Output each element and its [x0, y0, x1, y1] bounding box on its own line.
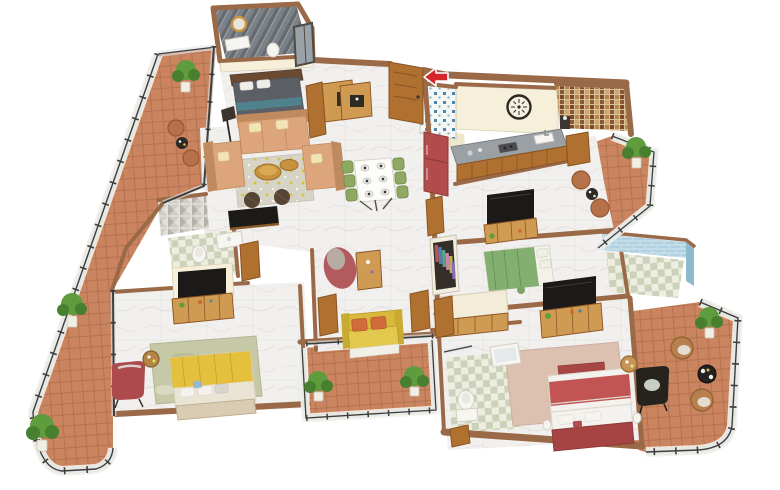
dining-table: [354, 158, 396, 202]
tea-cup: [183, 143, 186, 146]
sofa-pillow: [276, 119, 289, 129]
door-master: [434, 296, 454, 338]
door-mosaic-bathroom: [566, 132, 590, 166]
kitchen-clock-wall: [456, 84, 558, 134]
dish: [593, 195, 596, 198]
accent-pillow: [573, 420, 583, 427]
dish: [589, 191, 592, 194]
sofa-pillow: [311, 153, 323, 163]
dining-chair: [346, 189, 358, 202]
bathroom-brown-mosaic-wall: [556, 84, 628, 131]
plate: [709, 375, 713, 379]
snack: [707, 369, 710, 372]
decor: [370, 270, 373, 273]
gold-round-mirror: [232, 17, 246, 31]
round-cushion: [517, 286, 525, 294]
basin-bowl: [563, 116, 567, 120]
figurine: [366, 260, 370, 264]
blue-bath-right-wall: [686, 242, 694, 286]
sofa-pillow: [218, 151, 230, 161]
foyer-open-door: [306, 82, 326, 138]
pillow: [585, 411, 602, 422]
armchair-cushion: [644, 379, 660, 391]
armchair-left: [212, 141, 245, 190]
chair-cushion: [678, 345, 691, 355]
refrigerator: [424, 132, 448, 196]
decor: [147, 355, 150, 358]
rattan-chair: [691, 389, 713, 411]
burner: [504, 147, 507, 150]
pillow: [215, 383, 229, 393]
yellow-room-side-table: [143, 351, 159, 367]
cup: [630, 364, 633, 367]
toilet-top: [267, 43, 279, 57]
dresser-decor: [570, 310, 574, 314]
chair-cushion: [698, 397, 711, 407]
dining-chair: [344, 175, 356, 188]
dining-chair: [397, 186, 409, 199]
pillow: [537, 248, 549, 257]
plate: [701, 369, 705, 373]
cabinet-shelf: [350, 95, 364, 107]
toilet-seat: [462, 393, 471, 404]
clay-chair: [572, 171, 590, 189]
black-patio-table: [698, 365, 716, 383]
dresser-decor: [198, 300, 202, 304]
pillow: [540, 259, 552, 268]
patio-table: [176, 137, 188, 149]
door-hall-east: [410, 290, 430, 332]
rattan-chair: [671, 337, 693, 359]
pillow: [240, 81, 254, 90]
clay-chair: [183, 150, 199, 166]
orange-cushion: [371, 316, 387, 329]
dining-chair: [393, 158, 405, 171]
hall-side-table: [356, 250, 382, 290]
pillow: [558, 414, 575, 425]
yellow-bench: [341, 309, 404, 358]
dresser-plant: [179, 302, 184, 307]
dining-chair: [342, 161, 354, 174]
table-top-highlight: [259, 166, 277, 176]
dresser-decor: [210, 300, 213, 303]
floor-plan-stage: [0, 0, 780, 490]
jar: [478, 148, 482, 152]
entrance-door: [389, 62, 423, 124]
shoe-cabinet: [340, 82, 372, 120]
burner: [510, 145, 513, 148]
toilet-tank: [456, 408, 478, 422]
console-plant: [489, 233, 494, 238]
vase: [356, 98, 359, 101]
floor-plan-svg: [0, 0, 780, 490]
master-side-table: [621, 356, 637, 372]
orange-cushion: [352, 318, 368, 331]
door-media: [426, 196, 444, 236]
clay-chair: [591, 199, 609, 217]
armchair-right: [302, 143, 337, 190]
dresser-decor: [578, 309, 581, 312]
decor: [152, 359, 155, 362]
basin: [227, 237, 231, 241]
bathroom-door: [450, 425, 470, 447]
kettle: [467, 150, 472, 155]
door-handle: [416, 95, 419, 98]
door-hall-west: [318, 294, 338, 336]
yellow-room-dresser: [172, 293, 234, 324]
rug-mottle: [155, 385, 175, 395]
open-wardrobe: [430, 235, 459, 295]
sofa-pillow: [249, 122, 262, 132]
bathtub: [490, 343, 521, 367]
table-lamp: [543, 420, 551, 430]
bathroom-door: [240, 241, 260, 281]
wall-exterior-top-right: [448, 75, 626, 83]
dresser-plant: [545, 313, 551, 319]
wall-clock: [508, 96, 531, 119]
clay-chair: [168, 120, 184, 136]
three-seat-sofa: [238, 116, 310, 154]
table-lamp: [633, 413, 641, 423]
tea-cup: [179, 140, 182, 143]
toilet-seat: [195, 247, 203, 257]
pillow: [257, 79, 271, 88]
floor-bathroom-blue: [606, 252, 684, 298]
dining-chair: [395, 172, 407, 185]
window: [294, 23, 314, 66]
media-room: [484, 189, 538, 244]
master-tv-wall: [540, 276, 603, 338]
accent-pillow: [193, 381, 203, 389]
console-decor: [518, 229, 522, 233]
cup: [625, 360, 628, 363]
wall-foyer-top: [313, 60, 390, 64]
pillow: [180, 387, 195, 397]
patio-table: [586, 188, 598, 200]
